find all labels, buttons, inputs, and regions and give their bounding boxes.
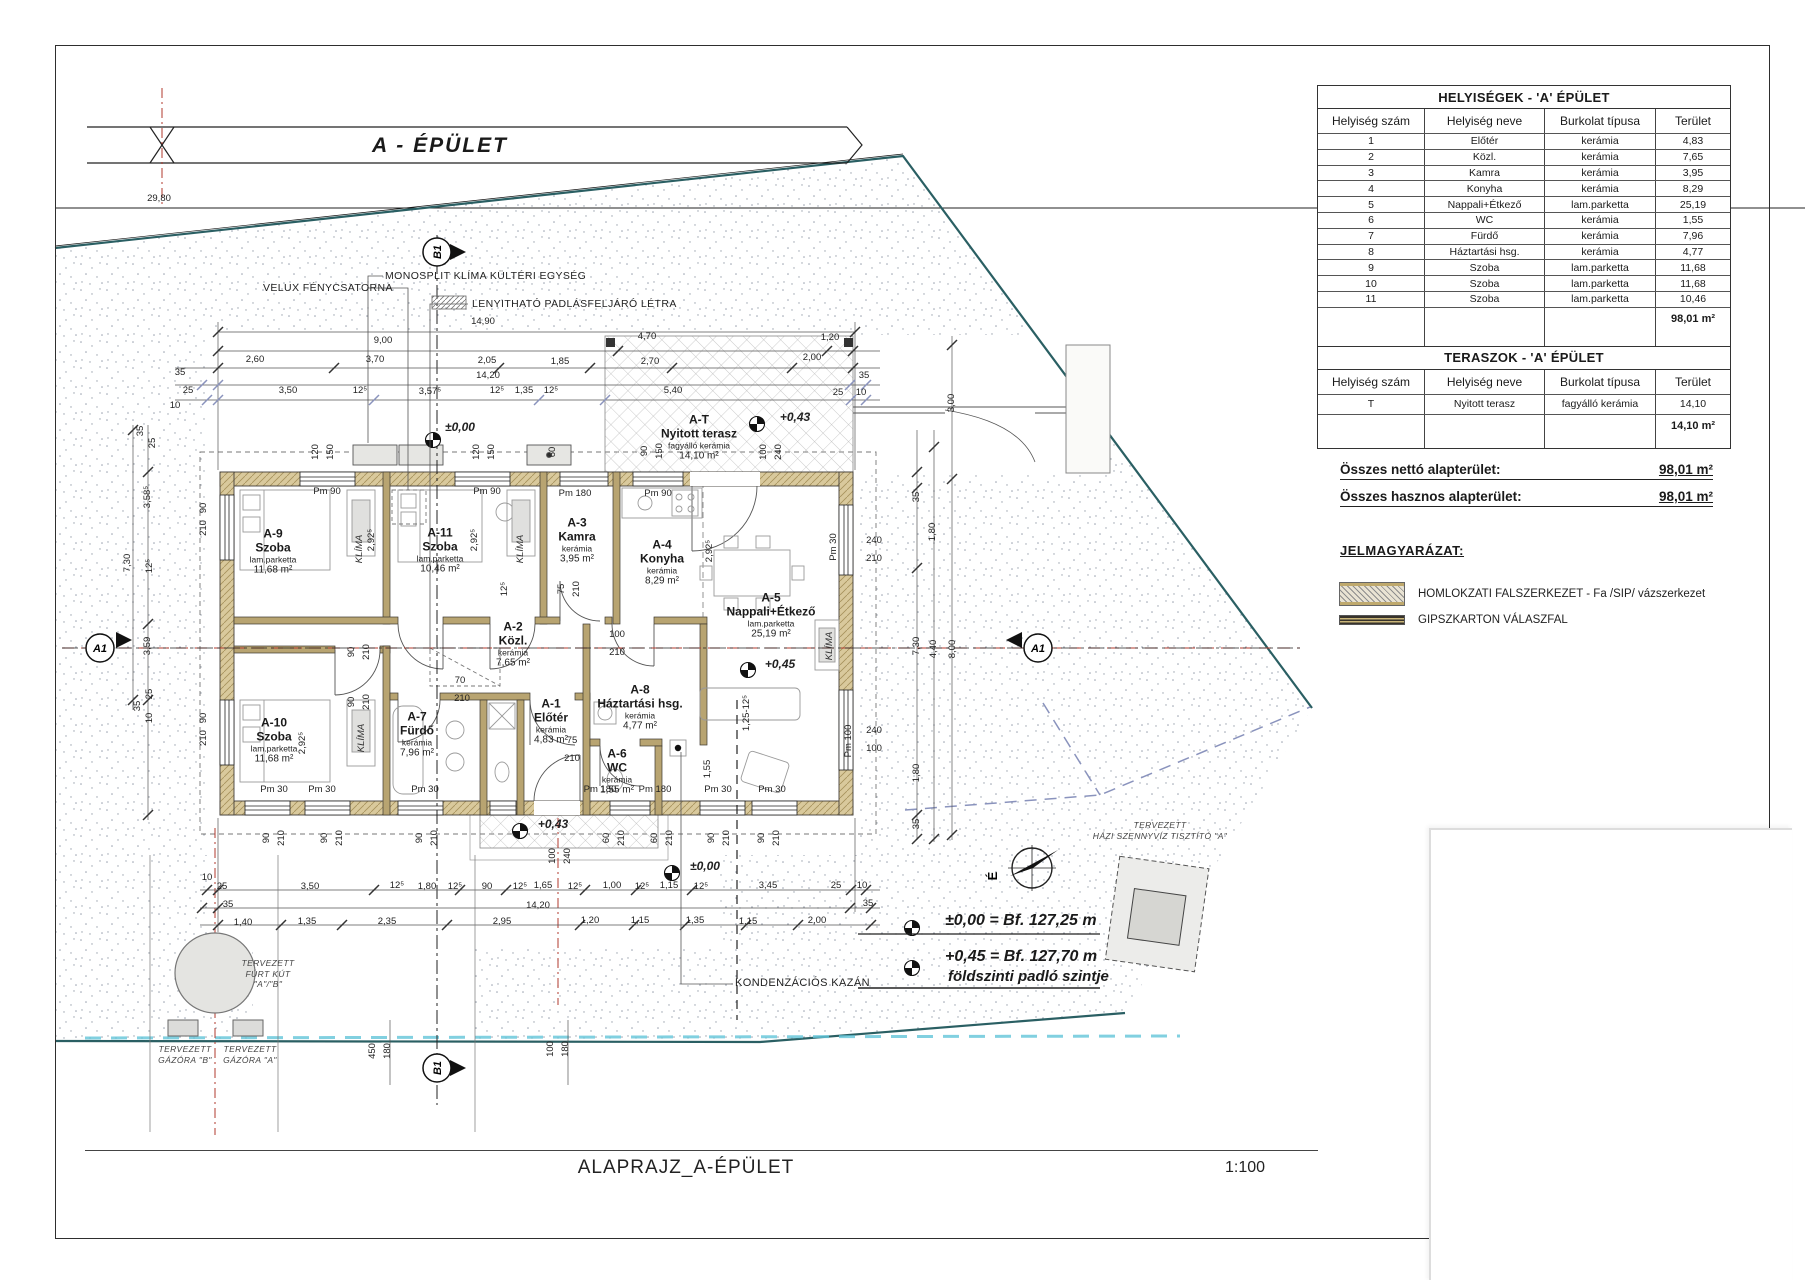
- dim-label: Pm 90: [473, 487, 500, 497]
- dim-label: 3,50: [301, 882, 320, 892]
- total-net-area: Összes nettó alapterület: 98,01 m²: [1340, 462, 1713, 480]
- dim-label: 12⁵: [353, 386, 368, 396]
- dim-label: 7,30: [912, 637, 922, 656]
- dim-label: 210: [430, 830, 440, 846]
- dim-label: 180: [383, 1043, 393, 1059]
- dim-label: 1,65: [534, 881, 553, 891]
- dim-label: 90: [415, 833, 425, 844]
- room-label: A-7 Fürdő kerámia 7,96 m²: [400, 711, 434, 760]
- dim-label: 90: [707, 833, 717, 844]
- dim-label: 1,15: [660, 881, 679, 891]
- dim-label: 210: [772, 830, 782, 846]
- dim-label: 1,25-12⁵: [742, 695, 752, 731]
- dim-label: 210: [617, 830, 627, 846]
- table-body: 1 Előtér kerámia 4,83 2 Közl. kerámia 7,…: [1318, 134, 1730, 308]
- dim-label: 60: [548, 447, 558, 458]
- dim-label: Pm 90: [313, 487, 340, 497]
- dim-label: 35: [912, 819, 922, 830]
- dim-label: Pm 90: [644, 489, 671, 499]
- table-row: 5 Nappali+Étkező lam.parketta 25,19: [1318, 197, 1730, 213]
- legend-item-facade-wall: HOMLOKZATI FALSZERKEZET - Fa /SIP/ vázsz…: [1340, 583, 1705, 605]
- room-label: A-9 Szoba lam.parketta 11,68 m²: [250, 528, 297, 577]
- dim-label: 70: [455, 676, 466, 686]
- room-label: A-1 Előtér kerámia 4,83 m²: [534, 698, 568, 747]
- dim-label: 1,20: [581, 916, 600, 926]
- legend-item-partition-wall: GIPSZKARTON VÁLASZFAL: [1340, 614, 1568, 626]
- dim-label: KLÍMA: [825, 632, 835, 661]
- dim-label: 35: [859, 371, 870, 381]
- room-label: A-T Nyitott terasz fagyálló kerámia 14,1…: [661, 414, 737, 463]
- table-row: 6 WC kerámia 1,55: [1318, 213, 1730, 229]
- annotation-kazan: KONDENZÁCIÓS KAZÁN: [735, 977, 870, 989]
- dim-label: 35: [136, 426, 146, 437]
- dim-label: ±0,00: [445, 422, 475, 432]
- dim-label: 10: [170, 401, 181, 411]
- dim-label: 210: [199, 730, 209, 746]
- dim-label: 12⁵: [694, 882, 709, 892]
- dim-label: 210: [609, 648, 625, 658]
- room-schedule-table: HELYISÉGEK - 'A' ÉPÜLET Helyiség szám He…: [1317, 85, 1731, 449]
- dim-label: 90: [347, 697, 357, 708]
- dim-label: 1,80: [912, 764, 922, 783]
- dim-label: 2,92⁵: [470, 529, 480, 551]
- svg-text:B1: B1: [432, 245, 444, 259]
- room-label: A-10 Szoba lam.parketta 11,68 m²: [251, 717, 298, 766]
- room-label: A-2 Közl. kerámia 7,65 m²: [496, 621, 530, 670]
- boiler-dot: [675, 745, 681, 751]
- dim-label: 12⁵: [390, 881, 405, 891]
- dim-label: Pm 100: [844, 725, 854, 758]
- dim-label: +0,43: [538, 819, 568, 829]
- dim-label: 1,35: [515, 386, 534, 396]
- total-usable-area: Összes hasznos alapterület: 98,01 m²: [1340, 489, 1713, 507]
- dim-label: 3,58⁵: [143, 486, 153, 508]
- dim-label: 12⁵: [448, 882, 463, 892]
- dim-label: 12⁵: [500, 582, 510, 597]
- dim-label: KLÍMA: [355, 535, 365, 564]
- svg-text:A1: A1: [92, 643, 107, 655]
- dim-label: 210: [665, 830, 675, 846]
- dim-label: 120: [472, 444, 482, 460]
- dim-label: 100: [546, 1041, 556, 1057]
- facade-wall-swatch-icon: [1340, 583, 1404, 605]
- dim-label: 2,92⁵: [298, 732, 308, 754]
- dim-label: 2,05: [478, 356, 497, 366]
- dim-label: 2,92⁵: [367, 529, 377, 551]
- table-row: 3 Kamra kerámia 3,95: [1318, 166, 1730, 182]
- annotation-sewage: TERVEZETTHÁZI SZENNYVÍZ TISZTÍTÓ "A": [1093, 820, 1227, 841]
- dim-label: 12⁵: [568, 882, 583, 892]
- dim-label: 12⁵: [490, 386, 505, 396]
- dim-label: 1,80: [928, 523, 938, 542]
- dim-label: KLÍMA: [516, 535, 526, 564]
- table-title-terraces: TERASZOK - 'A' ÉPÜLET: [1318, 347, 1730, 370]
- dim-label: 14,20: [526, 901, 550, 911]
- dim-label: 180: [561, 1041, 571, 1057]
- dim-label: +0,43: [780, 412, 810, 422]
- dim-label: 1,15: [631, 916, 650, 926]
- dim-label: 7,30: [123, 554, 133, 573]
- dim-label: Pm 30: [829, 533, 839, 560]
- dim-label: 3,00: [947, 394, 957, 413]
- dim-label: 240: [866, 726, 882, 736]
- dim-label: 240: [774, 444, 784, 460]
- dim-label: 2,92⁵: [705, 540, 715, 562]
- svg-text:A1: A1: [1030, 643, 1045, 655]
- dim-label: 75: [567, 736, 578, 746]
- dim-label: 29,80: [147, 194, 171, 204]
- dim-label: 14,20: [476, 371, 500, 381]
- dim-label: 240: [866, 536, 882, 546]
- dim-label: 1,85: [551, 357, 570, 367]
- annotation-gas-b: TERVEZETTGÁZÓRA "B": [158, 1044, 212, 1065]
- dim-label: 35: [133, 701, 143, 712]
- table-row: 8 Háztartási hsg. kerámia 4,77: [1318, 245, 1730, 261]
- dim-label: 60: [602, 833, 612, 844]
- dim-label: 25: [183, 386, 194, 396]
- dim-label: 10: [856, 388, 867, 398]
- sewage-treatment: [1105, 856, 1209, 972]
- drawing-scale: 1:100: [1225, 1159, 1265, 1177]
- terraces-total-area: 14,10 m²: [1655, 415, 1730, 448]
- dim-label: 10: [145, 713, 155, 724]
- dim-label: 90: [320, 833, 330, 844]
- dim-label: +0,45: [765, 659, 795, 669]
- gas-meter-b: [168, 1020, 198, 1036]
- dim-label: 35: [223, 900, 234, 910]
- dim-label: 210: [722, 830, 732, 846]
- dim-label: 90: [640, 446, 650, 457]
- dim-label: 2,35: [378, 917, 397, 927]
- dim-label: 90: [347, 647, 357, 658]
- annotation-velux: VELUX FÉNYCSATORNA: [263, 282, 393, 294]
- dim-label: 35: [912, 492, 922, 503]
- dim-label: Pm 30: [704, 785, 731, 795]
- dim-label: 12⁵: [544, 386, 559, 396]
- dim-label: 8,00: [948, 640, 958, 659]
- dim-label: 12⁵: [145, 559, 155, 574]
- dim-label: 1,35: [686, 916, 705, 926]
- drawing-title: ALAPRAJZ_A-ÉPÜLET: [578, 1157, 795, 1179]
- dim-label: 210: [866, 554, 882, 564]
- dim-label: 3,45: [759, 881, 778, 891]
- dim-label: Pm 30: [260, 785, 287, 795]
- annotation-well: TERVEZETTFÚRT KÚT"A"/"B": [241, 958, 294, 990]
- dim-label: 1,80: [418, 882, 437, 892]
- annotation-monosplit: MONOSPLIT KLÍMA KÜLTÉRI EGYSÉG: [385, 270, 586, 282]
- benchmark-level-0: ±0,00 = Bf. 127,25 m: [945, 912, 1097, 930]
- rooms-total-area: 98,01 m²: [1655, 308, 1730, 346]
- dim-label: 210: [572, 581, 582, 597]
- dim-label: 25: [833, 388, 844, 398]
- dim-label: ±0,00: [690, 861, 720, 871]
- dim-label: 1,40: [234, 918, 253, 928]
- dim-label: 90: [757, 833, 767, 844]
- dim-label: 1,55: [703, 760, 713, 779]
- table-row: 2 Közl. kerámia 7,65: [1318, 150, 1730, 166]
- dim-label: 100: [759, 444, 769, 460]
- table-title-rooms: HELYISÉGEK - 'A' ÉPÜLET: [1318, 86, 1730, 109]
- dim-label: Pm 180: [639, 785, 672, 795]
- dim-label: 100: [609, 630, 625, 640]
- gas-meter-a: [233, 1020, 263, 1036]
- building-floor: [220, 472, 853, 815]
- partition-wall-swatch-icon: [1340, 616, 1404, 624]
- dim-label: 25: [148, 438, 158, 449]
- table-row: T Nyitott terasz fagyálló kerámia 14,10: [1318, 395, 1730, 415]
- dim-label: 240: [563, 848, 573, 864]
- room-label: A-11 Szoba lam.parketta 10,46 m²: [417, 527, 464, 576]
- dim-label: 25: [217, 882, 228, 892]
- room-label: A-3 Kamra kerámia 3,95 m²: [558, 517, 595, 566]
- dim-label: 4,70: [638, 332, 657, 342]
- dim-label: 210: [199, 520, 209, 536]
- dim-label: 120: [311, 444, 321, 460]
- dim-label: 5,40: [664, 386, 683, 396]
- dim-label: 100: [548, 848, 558, 864]
- table-header: Helyiség szám Helyiség neve Burkolat típ…: [1318, 109, 1730, 134]
- dim-label: 210: [564, 754, 580, 764]
- building-banner-title: A - ÉPÜLET: [372, 134, 508, 158]
- dim-label: 1,15: [739, 917, 758, 927]
- benchmark-level-45: +0,45 = Bf. 127,70 m: [945, 948, 1097, 966]
- room-label: A-5 Nappali+Étkező lam.parketta 25,19 m²: [726, 592, 815, 641]
- dim-label: 35: [863, 899, 874, 909]
- dim-label: 3,57⁵: [419, 387, 441, 397]
- dim-label: 2,60: [246, 355, 265, 365]
- dim-label: 2,00: [808, 916, 827, 926]
- dim-label: 3,50: [279, 386, 298, 396]
- room-label: A-4 Konyha kerámia 8,29 m²: [640, 539, 684, 588]
- table-row: 9 Szoba lam.parketta 11,68: [1318, 260, 1730, 276]
- dim-label: 4,40: [929, 640, 939, 659]
- table-row: 7 Fürdő kerámia 7,96: [1318, 229, 1730, 245]
- dim-label: 10: [857, 881, 868, 891]
- dim-label: 1,20: [821, 333, 840, 343]
- table-total-row: 14,10 m²: [1318, 415, 1730, 448]
- dim-label: 210: [277, 830, 287, 846]
- dim-label: KLÍMA: [357, 724, 367, 753]
- dim-label: 9,00: [374, 336, 393, 346]
- dim-label: 100: [866, 744, 882, 754]
- annotation-gas-a: TERVEZETTGÁZÓRA "A": [223, 1044, 277, 1065]
- dim-label: 12⁵: [513, 882, 528, 892]
- dim-label: 450: [368, 1043, 378, 1059]
- blank-title-block: [1429, 828, 1792, 1280]
- dim-label: Pm 30: [411, 785, 438, 795]
- benchmark-level-45-sub: földszinti padló szintje: [948, 968, 1109, 985]
- dim-label: 1,00: [603, 881, 622, 891]
- dim-label: 25: [145, 689, 155, 700]
- dim-label: 2,00: [803, 353, 822, 363]
- dim-label: 210: [362, 694, 372, 710]
- dim-label: 3,70: [366, 355, 385, 365]
- dim-label: 210: [335, 830, 345, 846]
- table-body: T Nyitott terasz fagyálló kerámia 14,10: [1318, 395, 1730, 415]
- dim-label: 90: [262, 833, 272, 844]
- table-row: 11 Szoba lam.parketta 10,46: [1318, 292, 1730, 308]
- dim-label: 1,35: [298, 917, 317, 927]
- table-total-row: 98,01 m²: [1318, 308, 1730, 347]
- dim-label: 75: [557, 584, 567, 595]
- dim-label: Pm 30: [758, 785, 785, 795]
- dim-label: 25: [831, 881, 842, 891]
- dim-label: 2,95: [493, 917, 512, 927]
- dim-label: 3,59: [143, 637, 153, 656]
- table-header: Helyiség szám Helyiség neve Burkolat típ…: [1318, 370, 1730, 395]
- table-row: 1 Előtér kerámia 4,83: [1318, 134, 1730, 150]
- dim-label: 10: [202, 873, 213, 883]
- dim-label: 90: [482, 882, 493, 892]
- room-label: A-8 Háztartási hsg. kerámia 4,77 m²: [597, 684, 682, 733]
- dim-label: 90: [199, 503, 209, 514]
- dim-label: 210: [362, 644, 372, 660]
- dim-label: 150: [326, 444, 336, 460]
- dim-label: 60: [650, 833, 660, 844]
- table-row: 10 Szoba lam.parketta 11,68: [1318, 276, 1730, 292]
- dim-label: Pm 180: [559, 489, 592, 499]
- legend-title: JELMAGYARÁZAT:: [1340, 543, 1464, 558]
- room-label: A-6 WC kerámia 1,55 m²: [600, 748, 634, 797]
- dim-label: Pm 30: [308, 785, 335, 795]
- dim-label: 150: [487, 444, 497, 460]
- dim-label: 35: [175, 368, 186, 378]
- drawing-sheet: A1 A1 B1 B1: [0, 0, 1811, 1280]
- dim-label: 2,70: [641, 357, 660, 367]
- annotation-letra: LENYITHATÓ PADLÁSFELJÁRÓ LÉTRA: [472, 298, 677, 310]
- table-row: 4 Konyha kerámia 8,29: [1318, 181, 1730, 197]
- dim-label: 14,90: [471, 317, 495, 327]
- svg-text:É: É: [985, 871, 1000, 880]
- svg-text:B1: B1: [432, 1061, 444, 1075]
- dim-label: 90: [199, 713, 209, 724]
- footer-divider: [85, 1150, 1318, 1151]
- dim-label: 12⁵: [635, 882, 650, 892]
- dim-label: 210: [454, 694, 470, 704]
